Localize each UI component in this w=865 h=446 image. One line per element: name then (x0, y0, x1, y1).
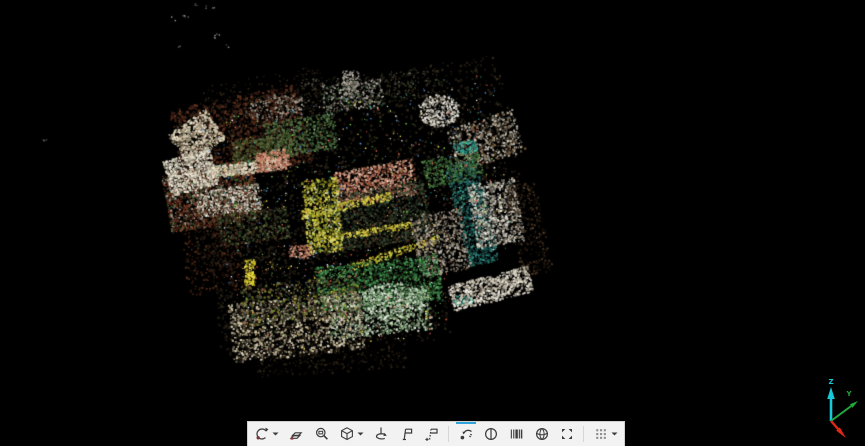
toolbar-fit-corners-button[interactable] (556, 422, 578, 446)
y-axis-label: Y (845, 390, 852, 398)
orbit-icon (254, 426, 270, 442)
fit-corners-icon (559, 426, 575, 442)
toolbar-tag-button[interactable] (396, 422, 418, 446)
toolbar-grid-views-button[interactable] (590, 422, 621, 446)
slices-icon (508, 426, 524, 442)
toolbar-zoom-window-button[interactable] (311, 422, 333, 446)
active-tool-indicator (456, 422, 476, 424)
pivot-icon (373, 426, 389, 442)
toolbar-tag-add-button[interactable] (421, 422, 443, 446)
toolbar-separator (583, 426, 584, 442)
view-cube-icon (339, 426, 355, 442)
tag-icon (399, 426, 415, 442)
toolbar-orbit-button[interactable] (251, 422, 282, 446)
tag-add-icon (424, 426, 440, 442)
zoom-window-icon (314, 426, 330, 442)
toolbar-swipe-button[interactable] (455, 422, 477, 446)
view-cube-dropdown-caret (357, 432, 364, 436)
toolbar-slices-button[interactable] (505, 422, 527, 446)
x-axis-arrow (831, 421, 839, 430)
toolbar-view-cube-button[interactable] (336, 422, 367, 446)
navigation-toolbar (247, 421, 625, 446)
orbit-dropdown-caret (272, 432, 279, 436)
z-axis-label: Z (828, 378, 833, 386)
point-cloud-viewport[interactable] (0, 0, 865, 446)
split-view-icon (483, 426, 499, 442)
toolbar-separator (448, 426, 449, 442)
toolbar-free-orbit-button[interactable] (285, 422, 307, 446)
viewer-stage: Z Y (0, 0, 865, 446)
swipe-icon (458, 426, 474, 442)
grid-views-icon (593, 426, 609, 442)
grid-views-dropdown-caret (611, 432, 618, 436)
toolbar-pivot-button[interactable] (370, 422, 392, 446)
free-orbit-icon (288, 426, 304, 442)
toolbar-split-view-button[interactable] (480, 422, 502, 446)
toolbar-ball-view-button[interactable] (531, 422, 553, 446)
z-axis-arrowhead (827, 387, 835, 399)
ball-view-icon (534, 426, 550, 442)
axis-gizmo: Z Y (800, 372, 865, 446)
y-axis-arrow (831, 406, 851, 421)
